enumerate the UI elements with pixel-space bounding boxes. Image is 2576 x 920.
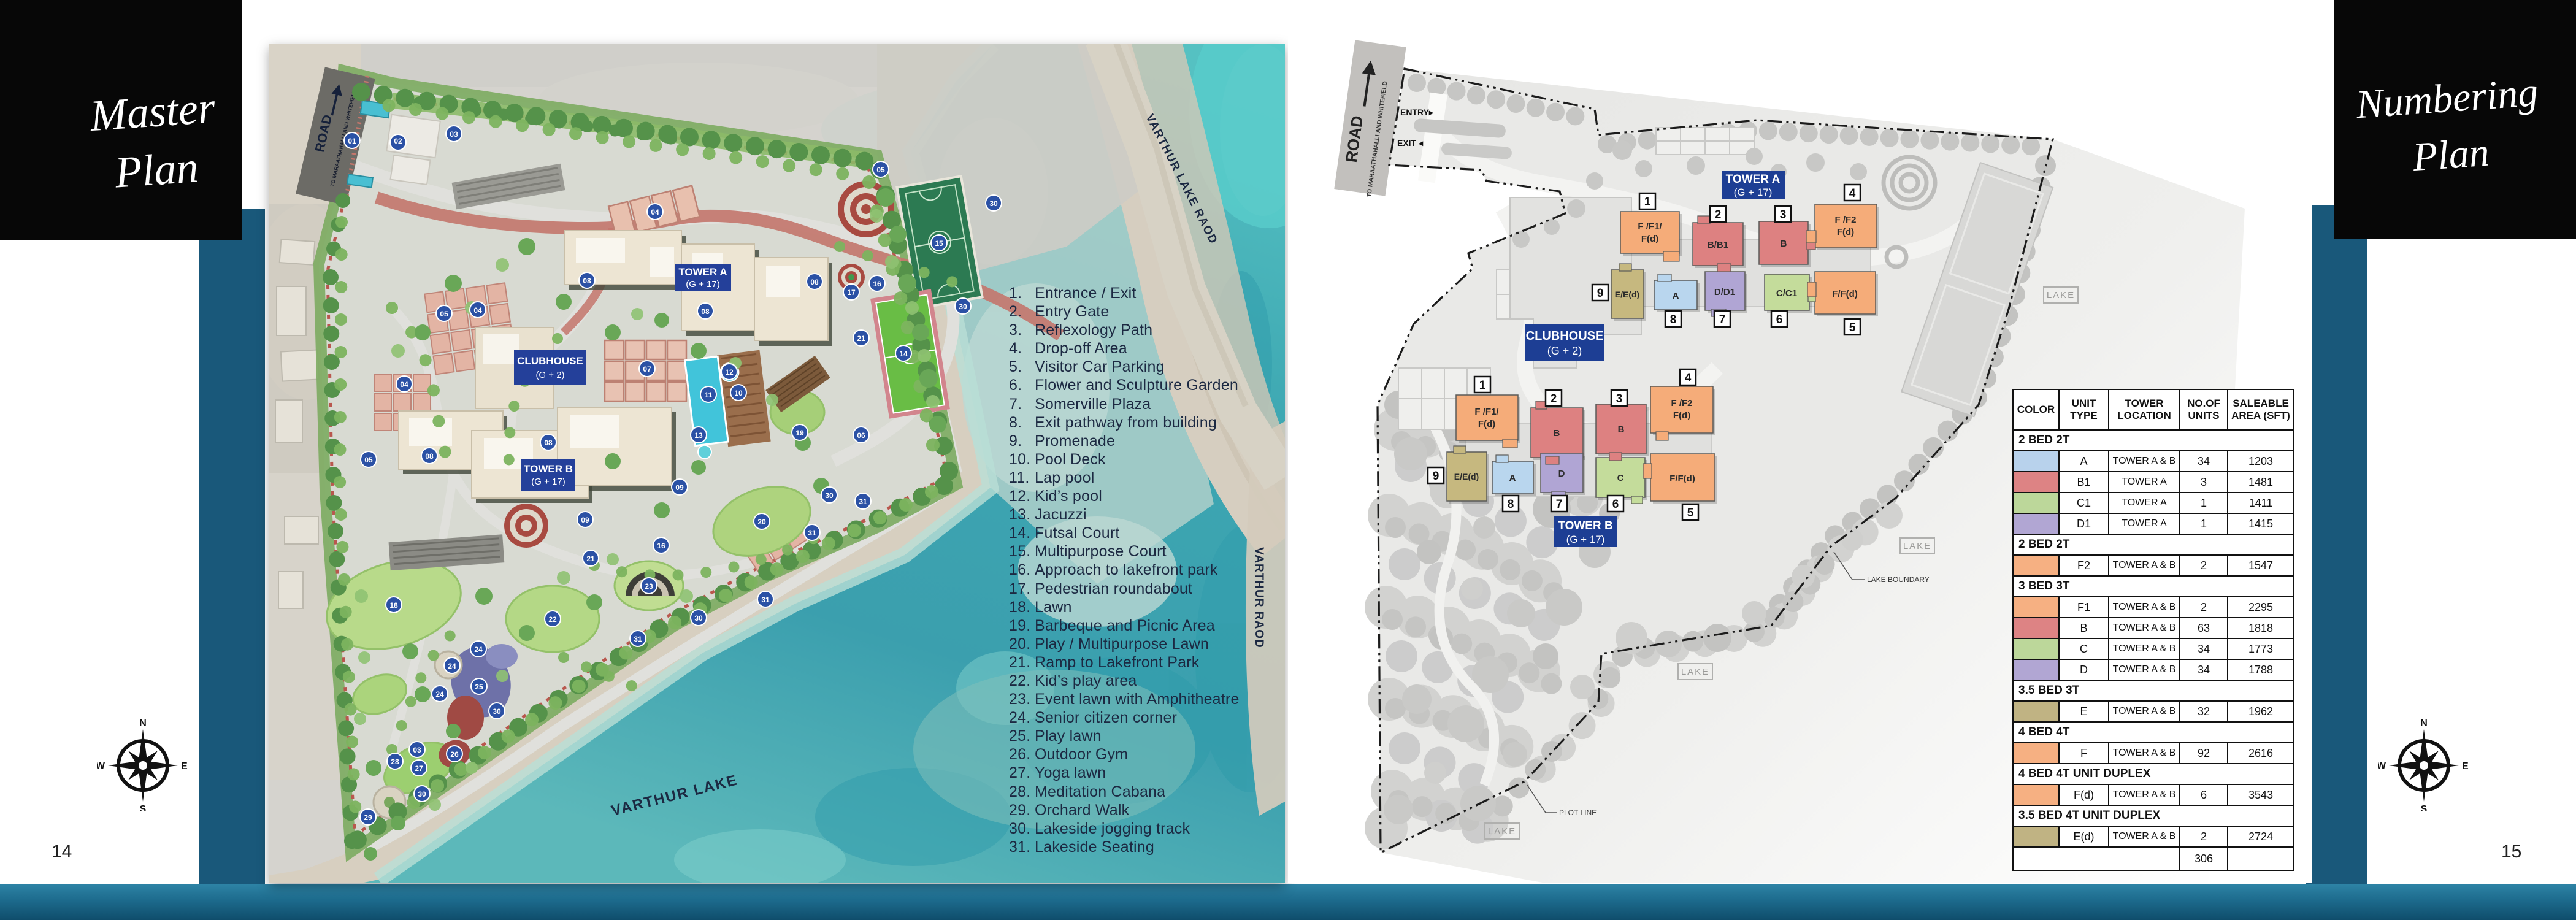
svg-text:14: 14 bbox=[899, 350, 908, 358]
svg-text:6: 6 bbox=[1776, 313, 1783, 326]
svg-text:31: 31 bbox=[761, 596, 770, 604]
svg-text:19: 19 bbox=[795, 429, 804, 437]
svg-text:27: 27 bbox=[415, 764, 423, 773]
svg-text:08: 08 bbox=[810, 278, 819, 286]
svg-text:B: B bbox=[1618, 424, 1625, 435]
svg-text:16: 16 bbox=[657, 542, 665, 550]
svg-text:11: 11 bbox=[705, 391, 713, 399]
svg-text:5: 5 bbox=[1849, 321, 1856, 334]
svg-text:S: S bbox=[140, 804, 147, 811]
svg-text:4: 4 bbox=[1849, 187, 1856, 200]
svg-text:CLUBHOUSE: CLUBHOUSE bbox=[1526, 329, 1604, 343]
svg-text:(G + 17): (G + 17) bbox=[1566, 534, 1605, 545]
svg-text:F /F2: F /F2 bbox=[1834, 215, 1856, 225]
svg-text:04: 04 bbox=[651, 208, 659, 217]
svg-text:(G + 2): (G + 2) bbox=[1547, 345, 1582, 357]
svg-text:23: 23 bbox=[645, 582, 653, 591]
svg-text:F/F(d): F/F(d) bbox=[1669, 473, 1695, 484]
svg-text:04: 04 bbox=[400, 380, 408, 389]
svg-text:24: 24 bbox=[474, 645, 483, 654]
svg-text:02: 02 bbox=[394, 137, 402, 145]
svg-text:F(d): F(d) bbox=[1641, 234, 1658, 244]
svg-text:(G + 17): (G + 17) bbox=[531, 477, 565, 487]
svg-text:08: 08 bbox=[425, 452, 434, 461]
svg-text:CLUBHOUSE: CLUBHOUSE bbox=[517, 355, 583, 367]
svg-text:C/C1: C/C1 bbox=[1776, 288, 1797, 299]
svg-text:29: 29 bbox=[364, 813, 372, 822]
svg-text:9: 9 bbox=[1433, 470, 1439, 483]
svg-text:5: 5 bbox=[1687, 507, 1694, 519]
svg-text:31: 31 bbox=[808, 529, 816, 537]
svg-text:10: 10 bbox=[734, 389, 743, 397]
svg-text:20: 20 bbox=[757, 518, 766, 526]
svg-text:3: 3 bbox=[1616, 393, 1623, 405]
svg-text:7: 7 bbox=[1556, 498, 1563, 511]
svg-text:LAKE: LAKE bbox=[1903, 541, 1931, 551]
svg-text:31: 31 bbox=[859, 497, 867, 506]
svg-text:08: 08 bbox=[583, 277, 591, 285]
svg-text:28: 28 bbox=[391, 757, 399, 766]
svg-text:21: 21 bbox=[586, 554, 595, 563]
svg-text:E: E bbox=[2462, 761, 2469, 772]
svg-text:30: 30 bbox=[418, 790, 426, 799]
svg-text:6: 6 bbox=[1612, 498, 1619, 511]
svg-text:31: 31 bbox=[634, 635, 642, 643]
svg-text:24: 24 bbox=[435, 690, 444, 699]
svg-text:2: 2 bbox=[1715, 209, 1722, 221]
svg-text:E/E(d): E/E(d) bbox=[1454, 472, 1479, 481]
svg-text:06: 06 bbox=[857, 431, 865, 440]
svg-text:26: 26 bbox=[450, 750, 459, 759]
svg-text:30: 30 bbox=[989, 199, 998, 208]
svg-text:22: 22 bbox=[548, 615, 557, 624]
svg-text:F(d): F(d) bbox=[1478, 419, 1495, 429]
svg-text:EXIT ◂: EXIT ◂ bbox=[1397, 138, 1424, 148]
svg-text:17: 17 bbox=[847, 288, 856, 297]
svg-text:13: 13 bbox=[694, 431, 703, 440]
svg-text:E: E bbox=[181, 761, 188, 772]
svg-text:16: 16 bbox=[873, 280, 881, 288]
svg-text:25: 25 bbox=[475, 683, 483, 691]
svg-text:N: N bbox=[2420, 719, 2428, 729]
svg-text:1: 1 bbox=[1479, 379, 1486, 392]
svg-text:03: 03 bbox=[413, 746, 421, 754]
svg-text:05: 05 bbox=[364, 456, 373, 464]
svg-text:LAKE: LAKE bbox=[2047, 290, 2075, 301]
svg-text:05: 05 bbox=[440, 310, 448, 318]
svg-text:(G + 17): (G + 17) bbox=[686, 279, 719, 289]
svg-text:TOWER A: TOWER A bbox=[678, 266, 727, 278]
svg-text:07: 07 bbox=[643, 365, 651, 374]
svg-text:TOWER A: TOWER A bbox=[1726, 173, 1781, 186]
svg-text:05: 05 bbox=[876, 166, 885, 174]
svg-text:F(d): F(d) bbox=[1673, 410, 1690, 421]
svg-text:03: 03 bbox=[450, 130, 458, 139]
svg-text:ENTRY▸: ENTRY▸ bbox=[1400, 107, 1434, 117]
svg-text:LAKE: LAKE bbox=[1488, 826, 1516, 837]
svg-text:N: N bbox=[139, 719, 147, 729]
svg-text:D: D bbox=[1558, 469, 1565, 479]
svg-text:A: A bbox=[1509, 473, 1516, 483]
svg-text:(G + 17): (G + 17) bbox=[1734, 186, 1773, 198]
svg-text:7: 7 bbox=[1719, 313, 1726, 326]
svg-text:12: 12 bbox=[725, 368, 734, 377]
svg-text:TOWER B: TOWER B bbox=[1558, 519, 1612, 532]
svg-text:(G + 2): (G + 2) bbox=[535, 370, 564, 380]
svg-text:W: W bbox=[2378, 761, 2386, 772]
svg-text:8: 8 bbox=[1508, 498, 1514, 511]
svg-text:3: 3 bbox=[1780, 209, 1787, 221]
svg-text:B: B bbox=[1554, 428, 1560, 439]
svg-text:8: 8 bbox=[1670, 313, 1677, 326]
svg-text:30: 30 bbox=[493, 707, 501, 716]
svg-text:F /F1/: F /F1/ bbox=[1474, 407, 1499, 417]
svg-text:4: 4 bbox=[1685, 372, 1692, 385]
svg-text:21: 21 bbox=[857, 334, 865, 343]
svg-text:W: W bbox=[97, 761, 105, 772]
svg-text:2: 2 bbox=[1551, 393, 1557, 405]
svg-text:15: 15 bbox=[935, 239, 943, 248]
svg-text:08: 08 bbox=[544, 439, 553, 447]
svg-text:F(d): F(d) bbox=[1837, 227, 1854, 237]
svg-text:01: 01 bbox=[348, 137, 356, 145]
svg-text:D/D1: D/D1 bbox=[1714, 287, 1735, 297]
svg-text:E/E(d): E/E(d) bbox=[1615, 289, 1639, 299]
svg-text:24: 24 bbox=[448, 662, 456, 670]
svg-text:F /F2: F /F2 bbox=[1671, 398, 1692, 408]
svg-text:PLOT LINE: PLOT LINE bbox=[1559, 808, 1597, 817]
svg-text:F/F(d): F/F(d) bbox=[1832, 289, 1858, 299]
svg-text:1: 1 bbox=[1644, 196, 1651, 209]
svg-text:S: S bbox=[2421, 804, 2428, 811]
svg-text:30: 30 bbox=[694, 614, 703, 623]
svg-text:TOWER B: TOWER B bbox=[524, 463, 573, 475]
svg-text:B/B1: B/B1 bbox=[1708, 240, 1728, 250]
svg-text:LAKE: LAKE bbox=[1681, 667, 1709, 677]
svg-text:B: B bbox=[1781, 239, 1787, 249]
svg-text:A: A bbox=[1673, 291, 1679, 301]
svg-text:09: 09 bbox=[675, 483, 684, 492]
svg-text:F /F1/: F /F1/ bbox=[1638, 221, 1662, 232]
svg-text:09: 09 bbox=[581, 516, 589, 524]
svg-text:LAKE BOUNDARY: LAKE BOUNDARY bbox=[1867, 575, 1930, 584]
svg-text:04: 04 bbox=[473, 306, 482, 315]
svg-text:18: 18 bbox=[389, 601, 398, 610]
svg-text:C: C bbox=[1617, 473, 1624, 483]
svg-text:9: 9 bbox=[1597, 287, 1604, 300]
svg-text:08: 08 bbox=[701, 307, 710, 316]
svg-text:30: 30 bbox=[959, 302, 967, 311]
svg-text:30: 30 bbox=[825, 491, 834, 500]
